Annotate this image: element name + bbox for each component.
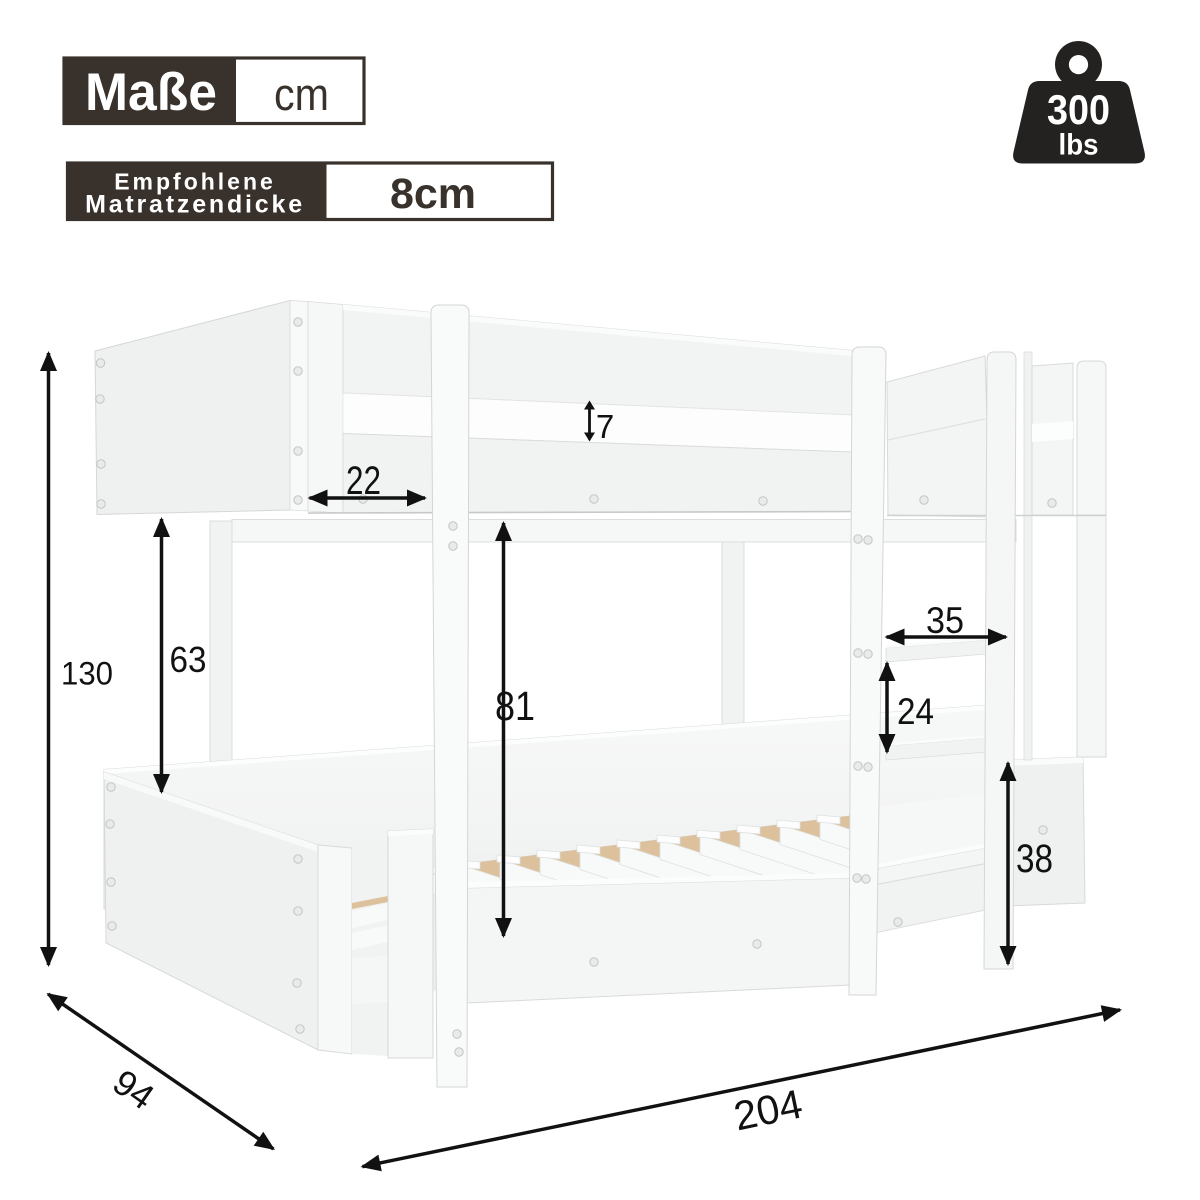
svg-text:130: 130 xyxy=(61,656,113,692)
svg-text:cm: cm xyxy=(274,69,329,120)
svg-text:81: 81 xyxy=(495,683,535,729)
svg-text:lbs: lbs xyxy=(1059,129,1099,162)
svg-text:38: 38 xyxy=(1016,837,1053,881)
svg-text:Matratzendicke: Matratzendicke xyxy=(85,191,305,219)
svg-text:Maße: Maße xyxy=(85,63,217,122)
svg-text:63: 63 xyxy=(170,639,207,680)
svg-text:8cm: 8cm xyxy=(390,170,476,218)
svg-text:7: 7 xyxy=(596,408,614,445)
svg-text:35: 35 xyxy=(926,600,964,641)
svg-text:300: 300 xyxy=(1047,86,1110,133)
svg-text:22: 22 xyxy=(346,459,381,503)
svg-text:24: 24 xyxy=(897,691,934,732)
